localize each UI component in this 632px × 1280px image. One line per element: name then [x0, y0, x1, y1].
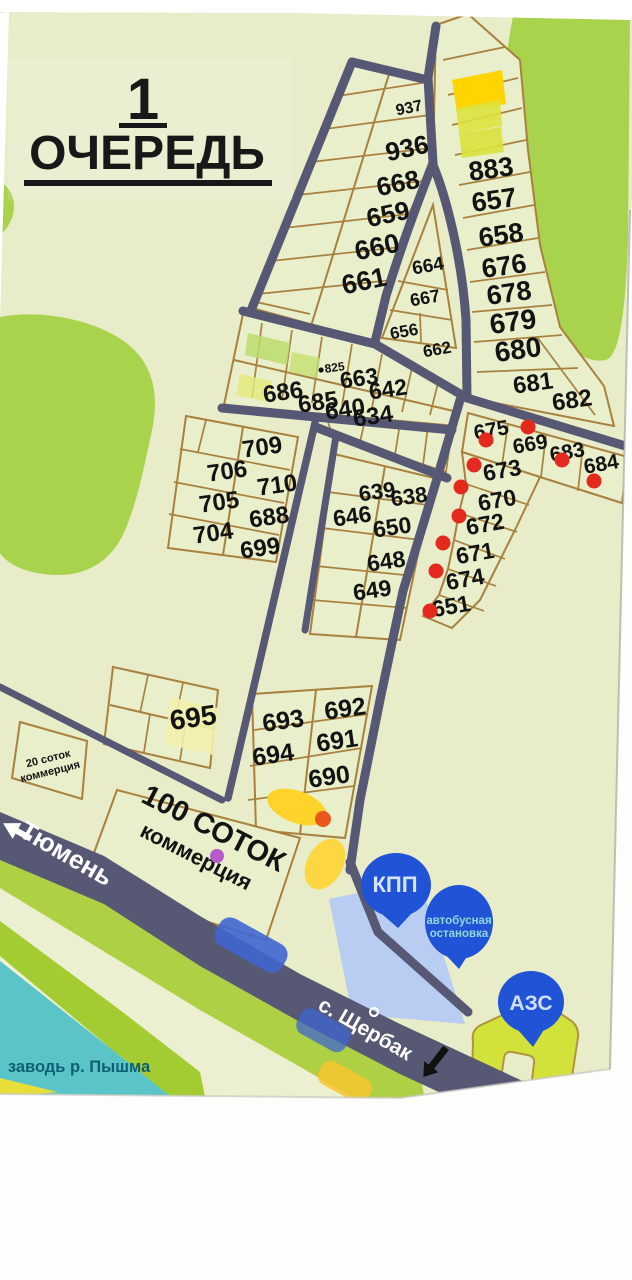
- svg-text:646: 646: [331, 500, 373, 531]
- svg-text:648: 648: [365, 545, 407, 576]
- svg-text:706: 706: [206, 455, 249, 487]
- svg-text:883: 883: [467, 151, 516, 187]
- svg-text:709: 709: [241, 431, 284, 463]
- svg-text:699: 699: [239, 532, 282, 564]
- svg-text:695: 695: [168, 699, 219, 736]
- svg-text:649: 649: [351, 574, 393, 605]
- svg-text:710: 710: [256, 469, 299, 501]
- svg-text:ОЧЕРЕДЬ: ОЧЕРЕДЬ: [29, 127, 265, 180]
- svg-text:688: 688: [248, 501, 291, 533]
- svg-text:634: 634: [351, 400, 395, 432]
- svg-text:693: 693: [261, 704, 306, 738]
- svg-text:694: 694: [251, 738, 296, 772]
- svg-text:автобусная: автобусная: [426, 915, 491, 927]
- svg-text:657: 657: [470, 182, 519, 218]
- svg-text:680: 680: [493, 331, 544, 368]
- svg-text:658: 658: [477, 217, 526, 253]
- svg-text:690: 690: [307, 760, 352, 794]
- svg-text:АЗС: АЗС: [510, 992, 553, 1015]
- svg-text:остановка: остановка: [430, 928, 489, 940]
- svg-text:1: 1: [127, 67, 159, 132]
- svg-text:638: 638: [389, 482, 429, 512]
- svg-text:650: 650: [371, 511, 413, 542]
- svg-text:681: 681: [511, 367, 554, 399]
- svg-text:691: 691: [315, 724, 360, 758]
- svg-text:КПП: КПП: [372, 872, 417, 897]
- svg-text:705: 705: [198, 486, 241, 518]
- svg-text:682: 682: [550, 384, 593, 416]
- svg-text:заводь р. Пышма: заводь р. Пышма: [8, 1058, 151, 1076]
- svg-text:692: 692: [323, 692, 368, 726]
- svg-text:704: 704: [192, 517, 236, 549]
